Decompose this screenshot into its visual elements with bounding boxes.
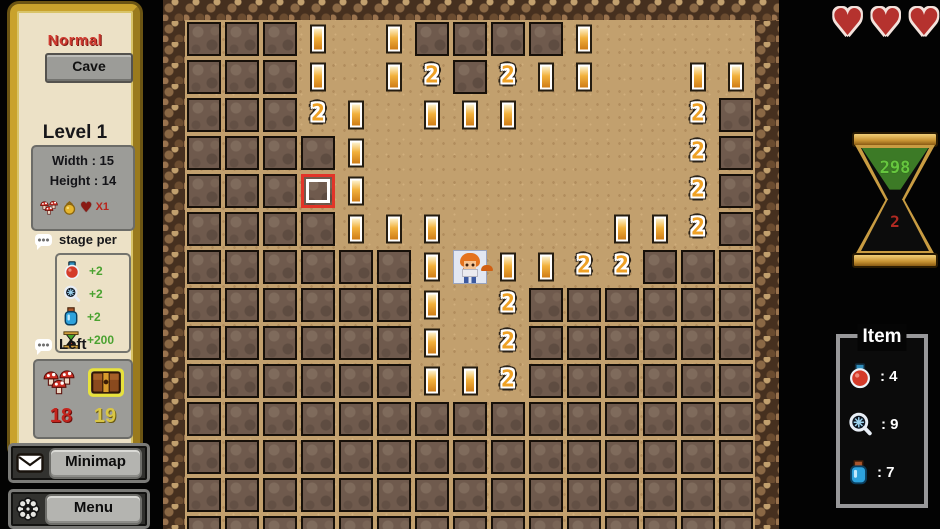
covered-tile[interactable] [299, 248, 337, 286]
number-1-tile [413, 362, 451, 400]
revealed-tile [527, 172, 565, 210]
item-row: : 4 [848, 358, 922, 394]
number-2-tile: 2 [299, 96, 337, 134]
revealed-tile [375, 134, 413, 172]
covered-tile[interactable] [717, 134, 755, 172]
stage-per-label: stage per [59, 233, 117, 246]
minimap-button-label: Minimap [49, 448, 142, 479]
revealed-tile [603, 58, 641, 96]
covered-tile[interactable] [451, 438, 489, 476]
covered-tile[interactable] [261, 210, 299, 248]
covered-tile[interactable] [185, 514, 223, 529]
covered-tile[interactable] [413, 400, 451, 438]
remaining-box: 18 19 [33, 359, 133, 439]
covered-tile[interactable] [299, 514, 337, 529]
hearts-bar: ♥♥♥ [831, 4, 940, 41]
revealed-tile [717, 20, 755, 58]
covered-tile[interactable] [641, 514, 679, 529]
game-screen: Normal Cave Level 1 Width : 15 Height : … [0, 0, 940, 529]
covered-tile[interactable] [603, 438, 641, 476]
revealed-tile [489, 172, 527, 210]
covered-tile[interactable] [717, 476, 755, 514]
item-row: : 9 [848, 406, 922, 442]
number-1-tile [527, 58, 565, 96]
covered-tile[interactable] [451, 476, 489, 514]
covered-tile[interactable] [299, 362, 337, 400]
covered-tile[interactable] [451, 58, 489, 96]
covered-tile[interactable] [223, 438, 261, 476]
covered-tile[interactable] [641, 400, 679, 438]
covered-tile[interactable] [603, 362, 641, 400]
covered-tile[interactable] [185, 286, 223, 324]
revealed-tile [375, 96, 413, 134]
heart-icon: ♥ [869, 4, 902, 41]
covered-tile[interactable] [565, 476, 603, 514]
stage-per-value: +2 [89, 288, 103, 300]
stage-per-header: stage per [35, 233, 117, 246]
timer-elapsed-value: 2 [861, 214, 929, 230]
covered-tile[interactable] [717, 172, 755, 210]
cave-button[interactable]: Cave [45, 53, 133, 83]
covered-tile[interactable] [261, 362, 299, 400]
left-header: Left [35, 337, 87, 352]
revealed-tile [565, 96, 603, 134]
covered-tile[interactable] [375, 286, 413, 324]
hourglass-bottom-bar [852, 253, 938, 268]
number-1-tile [679, 58, 717, 96]
revealed-tile [527, 134, 565, 172]
covered-tile[interactable] [223, 476, 261, 514]
stage-per-value: +2 [87, 311, 101, 323]
covered-tile[interactable] [375, 362, 413, 400]
hourglass-top-funnel: 298 [855, 145, 935, 200]
covered-tile[interactable] [185, 20, 223, 58]
revealed-tile [451, 172, 489, 210]
covered-tile[interactable] [299, 476, 337, 514]
revealed-tile [565, 134, 603, 172]
revealed-tile [451, 286, 489, 324]
covered-tile[interactable] [375, 438, 413, 476]
covered-tile[interactable] [527, 400, 565, 438]
covered-tile[interactable] [679, 476, 717, 514]
menu-button[interactable]: Menu [8, 489, 150, 529]
board-border-top [163, 0, 779, 20]
covered-tile[interactable] [489, 20, 527, 58]
covered-tile[interactable] [261, 58, 299, 96]
covered-tile[interactable] [185, 476, 223, 514]
item-count: : 9 [881, 417, 899, 432]
blue-potion-icon [63, 307, 79, 326]
revealed-tile [641, 172, 679, 210]
revealed-tile [565, 172, 603, 210]
covered-tile[interactable] [489, 514, 527, 529]
covered-tile[interactable] [261, 286, 299, 324]
covered-tile[interactable] [565, 438, 603, 476]
minimap-button[interactable]: Minimap [8, 443, 150, 483]
covered-tile[interactable] [413, 438, 451, 476]
revealed-tile [527, 210, 565, 248]
covered-tile[interactable] [527, 20, 565, 58]
covered-tile[interactable] [641, 248, 679, 286]
revealed-tile [375, 172, 413, 210]
chest-icon [88, 366, 124, 398]
covered-tile[interactable] [261, 476, 299, 514]
game-board: 222222222222 [163, 0, 779, 529]
covered-tile[interactable] [717, 286, 755, 324]
covered-tile[interactable] [565, 286, 603, 324]
mushrooms-left-count: 18 [41, 401, 81, 431]
covered-tile[interactable] [489, 438, 527, 476]
revealed-tile [641, 58, 679, 96]
hourglass-glass: 298 2 [855, 145, 935, 255]
revealed-tile [565, 210, 603, 248]
covered-tile[interactable] [679, 400, 717, 438]
covered-tile[interactable] [337, 400, 375, 438]
covered-tile[interactable] [717, 400, 755, 438]
covered-tile[interactable] [223, 210, 261, 248]
number-1-tile [299, 58, 337, 96]
number-2-tile: 2 [679, 172, 717, 210]
heart-multiplier-label: X1 [96, 202, 109, 213]
covered-tile[interactable] [641, 438, 679, 476]
number-1-tile [565, 20, 603, 58]
covered-tile[interactable] [717, 210, 755, 248]
number-2-tile: 2 [679, 210, 717, 248]
revealed-tile [603, 134, 641, 172]
revealed-tile [451, 324, 489, 362]
number-2-tile: 2 [679, 96, 717, 134]
covered-tile[interactable] [527, 514, 565, 529]
covered-tile[interactable] [717, 248, 755, 286]
stage-per-value: +200 [87, 334, 114, 346]
covered-tile[interactable] [261, 324, 299, 362]
number-1-tile [337, 210, 375, 248]
hourglass-bottom-funnel: 2 [855, 200, 935, 255]
revealed-tile [641, 134, 679, 172]
covered-tile[interactable] [223, 286, 261, 324]
item-count: : 7 [877, 465, 895, 480]
covered-tile[interactable] [299, 210, 337, 248]
covered-tile[interactable] [299, 134, 337, 172]
red-potion-icon [848, 363, 872, 389]
height-label: Height : 14 [33, 174, 133, 187]
covered-tile[interactable] [337, 476, 375, 514]
covered-tile[interactable] [223, 134, 261, 172]
width-label: Width : 15 [33, 154, 133, 167]
covered-tile[interactable] [185, 324, 223, 362]
covered-tile[interactable] [641, 286, 679, 324]
number-1-tile [337, 134, 375, 172]
number-1-tile [717, 58, 755, 96]
covered-tile[interactable] [717, 96, 755, 134]
level-title: Level 1 [21, 123, 129, 142]
number-1-tile [641, 210, 679, 248]
revealed-tile [641, 96, 679, 134]
covered-tile[interactable] [717, 514, 755, 529]
number-1-tile [413, 324, 451, 362]
cursor-tile[interactable] [299, 172, 337, 210]
modifier-row: ♥ X1 [39, 199, 131, 216]
heart-icon: ♥ [907, 4, 940, 41]
revealed-tile [413, 134, 451, 172]
covered-tile[interactable] [299, 438, 337, 476]
covered-tile[interactable] [337, 324, 375, 362]
player-tile [451, 248, 489, 286]
covered-tile[interactable] [375, 476, 413, 514]
revealed-tile [603, 172, 641, 210]
covered-tile[interactable] [337, 286, 375, 324]
number-2-tile: 2 [603, 248, 641, 286]
covered-tile[interactable] [375, 514, 413, 529]
covered-tile[interactable] [527, 362, 565, 400]
covered-tile[interactable] [565, 400, 603, 438]
covered-tile[interactable] [451, 514, 489, 529]
covered-tile[interactable] [261, 438, 299, 476]
speech-bubble-icon [35, 234, 52, 246]
item-count: : 4 [880, 369, 898, 384]
covered-tile[interactable] [527, 476, 565, 514]
covered-tile[interactable] [337, 438, 375, 476]
covered-tile[interactable] [527, 286, 565, 324]
mushroom-cluster-icon [42, 367, 76, 397]
covered-tile[interactable] [261, 400, 299, 438]
covered-tile[interactable] [223, 96, 261, 134]
number-2-tile: 2 [565, 248, 603, 286]
number-1-tile [337, 96, 375, 134]
envelope-icon [16, 453, 44, 473]
covered-tile[interactable] [223, 514, 261, 529]
covered-tile[interactable] [451, 400, 489, 438]
magnifier-icon [848, 412, 873, 437]
number-1-tile [451, 362, 489, 400]
covered-tile[interactable] [527, 324, 565, 362]
item-panel-title: Item [857, 324, 906, 351]
covered-tile[interactable] [413, 20, 451, 58]
timer-remaining-value: 298 [861, 160, 929, 177]
number-1-tile [375, 20, 413, 58]
revealed-tile [603, 20, 641, 58]
item-row: : 7 [848, 454, 922, 490]
gold-pouch-icon [62, 200, 77, 215]
number-1-tile [413, 248, 451, 286]
magnifier-icon [63, 285, 81, 303]
covered-tile[interactable] [337, 514, 375, 529]
number-1-tile [603, 210, 641, 248]
covered-tile[interactable] [261, 248, 299, 286]
covered-tile[interactable] [185, 96, 223, 134]
covered-tile[interactable] [717, 362, 755, 400]
covered-tile[interactable] [679, 324, 717, 362]
menu-button-label: Menu [45, 494, 142, 525]
covered-tile[interactable] [375, 324, 413, 362]
revealed-tile [337, 58, 375, 96]
covered-tile[interactable] [223, 324, 261, 362]
blue-potion-icon [848, 460, 869, 485]
number-1-tile [375, 58, 413, 96]
covered-tile[interactable] [223, 400, 261, 438]
number-2-tile: 2 [489, 362, 527, 400]
covered-tile[interactable] [223, 248, 261, 286]
covered-tile[interactable] [603, 400, 641, 438]
revealed-tile [489, 134, 527, 172]
revealed-tile [413, 172, 451, 210]
covered-tile[interactable] [185, 58, 223, 96]
covered-tile[interactable] [299, 324, 337, 362]
covered-tile[interactable] [299, 286, 337, 324]
covered-tile[interactable] [375, 400, 413, 438]
covered-tile[interactable] [717, 324, 755, 362]
number-1-tile [337, 172, 375, 210]
flower-icon [16, 497, 40, 521]
level-info-panel: Normal Cave Level 1 Width : 15 Height : … [10, 4, 140, 456]
number-2-tile: 2 [489, 286, 527, 324]
chests-left-count: 19 [85, 401, 125, 431]
board-border-left [163, 0, 185, 529]
covered-tile[interactable] [565, 514, 603, 529]
covered-tile[interactable] [603, 286, 641, 324]
covered-tile[interactable] [679, 286, 717, 324]
covered-tile[interactable] [185, 172, 223, 210]
revealed-tile [451, 134, 489, 172]
covered-tile[interactable] [261, 20, 299, 58]
difficulty-label: Normal [21, 33, 129, 48]
covered-tile[interactable] [679, 362, 717, 400]
covered-tile[interactable] [261, 514, 299, 529]
number-1-tile [299, 20, 337, 58]
heart-icon: ♥ [80, 201, 93, 215]
covered-tile[interactable] [337, 362, 375, 400]
item-panel: Item : 4 : 9 : 7 [836, 334, 928, 508]
number-2-tile: 2 [413, 58, 451, 96]
speech-bubble-icon [35, 339, 52, 351]
number-1-tile [451, 96, 489, 134]
number-1-tile [527, 248, 565, 286]
covered-tile[interactable] [261, 172, 299, 210]
covered-tile[interactable] [337, 248, 375, 286]
covered-tile[interactable] [641, 324, 679, 362]
covered-tile[interactable] [261, 96, 299, 134]
number-1-tile [413, 96, 451, 134]
revealed-tile [489, 210, 527, 248]
minefield[interactable]: 222222222222 [185, 20, 755, 529]
red-potion-icon [63, 261, 81, 280]
revealed-tile [337, 20, 375, 58]
covered-tile[interactable] [565, 362, 603, 400]
covered-tile[interactable] [489, 476, 527, 514]
covered-tile[interactable] [679, 514, 717, 529]
covered-tile[interactable] [603, 324, 641, 362]
revealed-tile [603, 96, 641, 134]
number-2-tile: 2 [489, 324, 527, 362]
covered-tile[interactable] [641, 362, 679, 400]
hourglass-timer: 298 2 [852, 132, 938, 268]
covered-tile[interactable] [413, 476, 451, 514]
number-2-tile: 2 [679, 134, 717, 172]
covered-tile[interactable] [185, 134, 223, 172]
covered-tile[interactable] [223, 20, 261, 58]
covered-tile[interactable] [185, 400, 223, 438]
covered-tile[interactable] [679, 438, 717, 476]
covered-tile[interactable] [679, 248, 717, 286]
number-1-tile [565, 58, 603, 96]
covered-tile[interactable] [185, 438, 223, 476]
covered-tile[interactable] [185, 210, 223, 248]
stage-per-value: +2 [89, 265, 103, 277]
covered-tile[interactable] [299, 400, 337, 438]
covered-tile[interactable] [527, 438, 565, 476]
covered-tile[interactable] [451, 20, 489, 58]
covered-tile[interactable] [185, 248, 223, 286]
stage-per-row: +2 [57, 305, 129, 328]
covered-tile[interactable] [223, 362, 261, 400]
covered-tile[interactable] [603, 476, 641, 514]
mushroom-icon [39, 199, 59, 216]
covered-tile[interactable] [565, 324, 603, 362]
number-1-tile [413, 286, 451, 324]
number-2-tile: 2 [489, 58, 527, 96]
covered-tile[interactable] [603, 514, 641, 529]
covered-tile[interactable] [489, 400, 527, 438]
number-1-tile [375, 210, 413, 248]
number-1-tile [413, 210, 451, 248]
number-1-tile [489, 96, 527, 134]
covered-tile[interactable] [223, 172, 261, 210]
revealed-tile [679, 20, 717, 58]
covered-tile[interactable] [641, 476, 679, 514]
board-border-right [755, 0, 779, 529]
left-label: Left [59, 337, 87, 352]
covered-tile[interactable] [375, 248, 413, 286]
number-1-tile [489, 248, 527, 286]
covered-tile[interactable] [413, 514, 451, 529]
level-stats-box: Width : 15 Height : 14 [31, 145, 135, 231]
covered-tile[interactable] [185, 362, 223, 400]
stage-per-row: +2 [57, 282, 129, 305]
covered-tile[interactable] [261, 134, 299, 172]
revealed-tile [527, 96, 565, 134]
covered-tile[interactable] [717, 438, 755, 476]
revealed-tile [451, 210, 489, 248]
revealed-tile [641, 20, 679, 58]
stage-per-row: +2 [57, 259, 129, 282]
heart-icon: ♥ [831, 4, 864, 41]
covered-tile[interactable] [223, 58, 261, 96]
